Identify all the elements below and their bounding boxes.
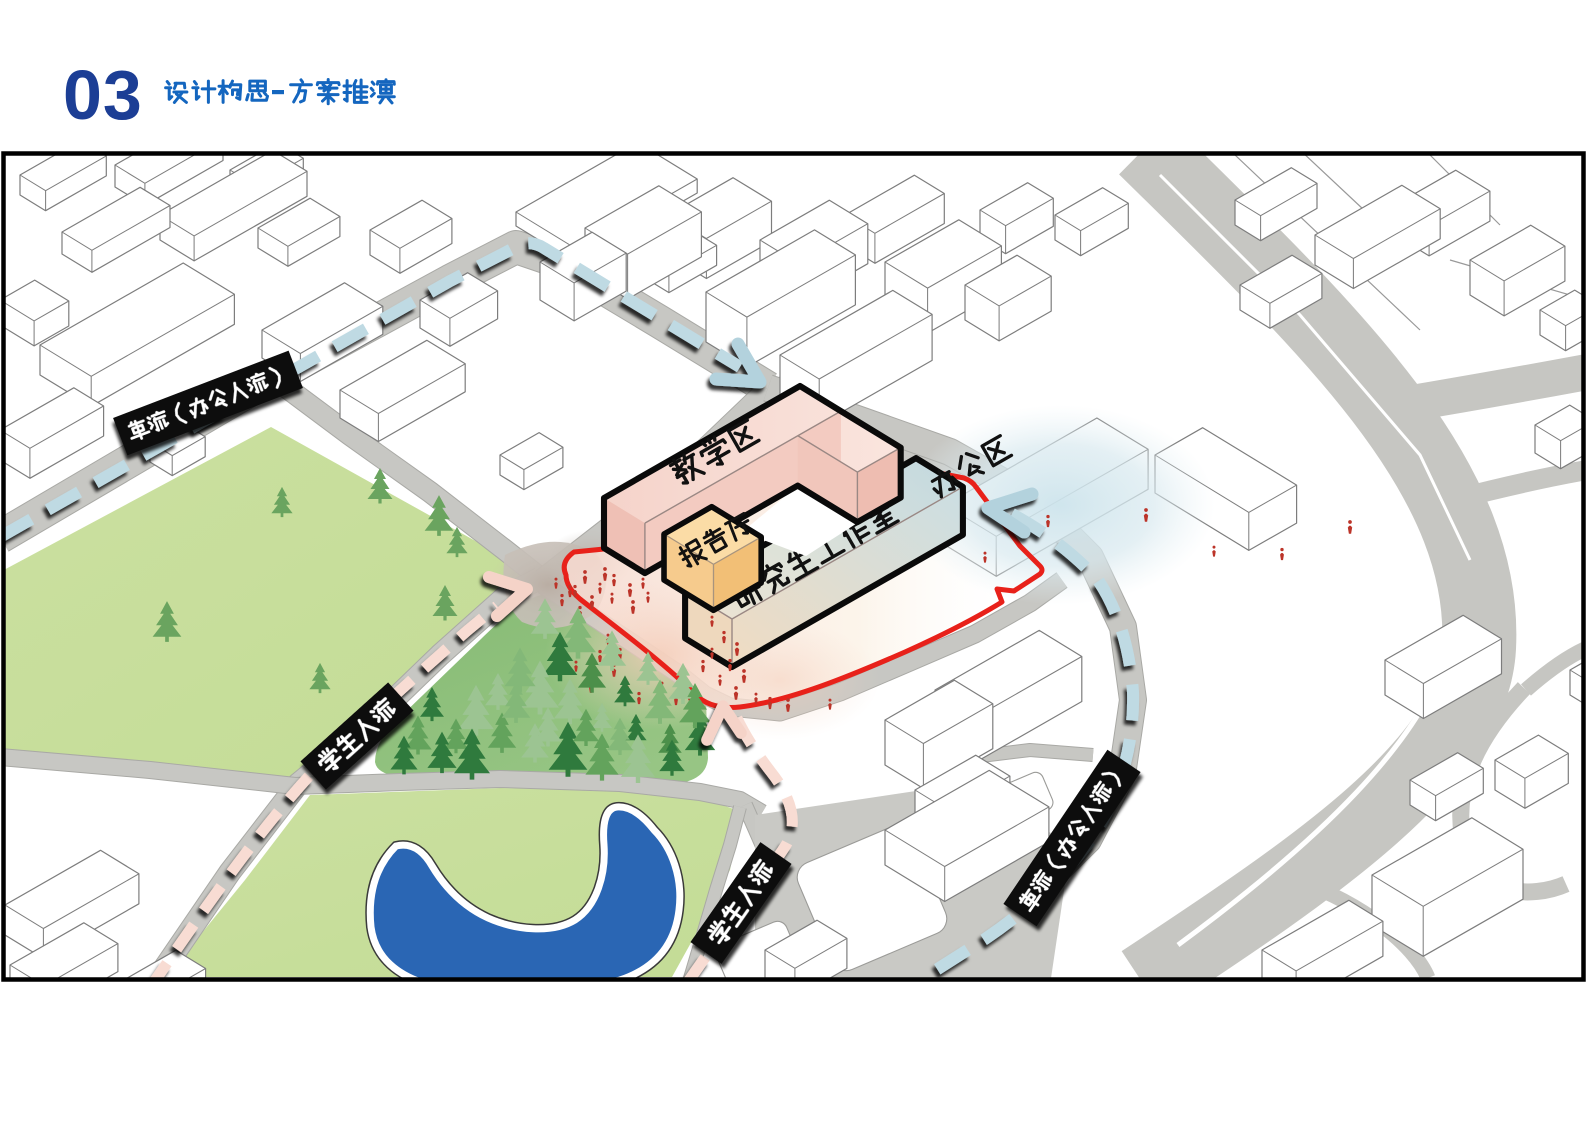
svg-text:03: 03 [63,56,143,134]
